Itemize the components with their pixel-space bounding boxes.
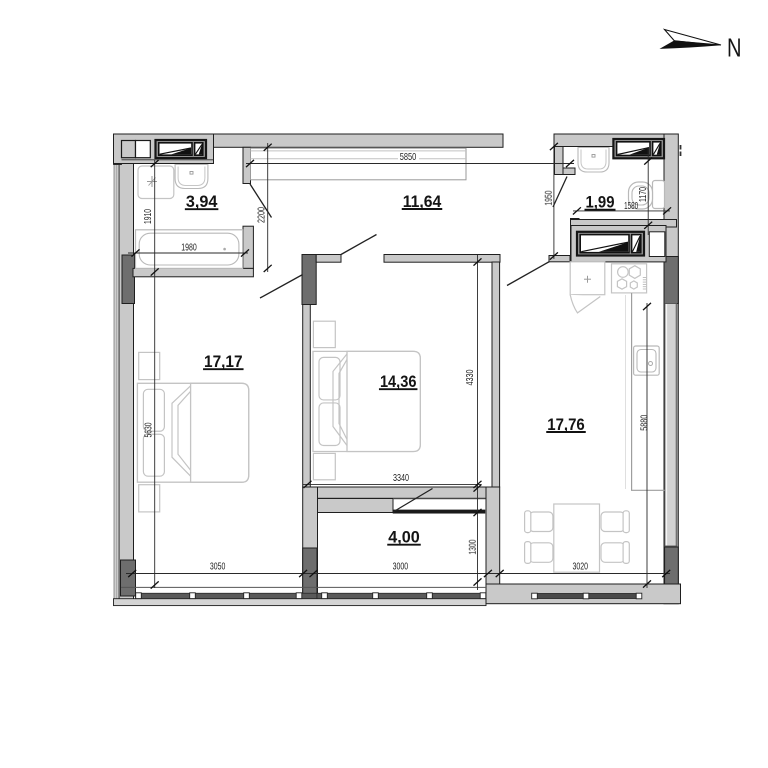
svg-text:1980: 1980 xyxy=(181,242,197,254)
svg-text:3000: 3000 xyxy=(393,560,409,572)
svg-text:2200: 2200 xyxy=(256,207,268,223)
svg-text:3,94: 3,94 xyxy=(186,192,218,211)
svg-text:1,99: 1,99 xyxy=(586,193,615,212)
svg-text:1910: 1910 xyxy=(142,209,154,224)
svg-text:5880: 5880 xyxy=(638,415,650,431)
svg-text:5850: 5850 xyxy=(400,151,417,163)
svg-text:17,17: 17,17 xyxy=(204,352,243,371)
svg-text:3340: 3340 xyxy=(393,472,409,484)
svg-text:17,76: 17,76 xyxy=(547,415,585,434)
svg-text:3020: 3020 xyxy=(573,560,589,572)
svg-text:5630: 5630 xyxy=(143,422,155,437)
svg-text:N: N xyxy=(727,33,742,63)
svg-text:1170: 1170 xyxy=(637,187,649,202)
svg-text:4,00: 4,00 xyxy=(388,528,420,547)
svg-text:1950: 1950 xyxy=(543,190,555,205)
svg-text:1300: 1300 xyxy=(467,539,479,554)
svg-text:3050: 3050 xyxy=(210,560,226,572)
svg-text:4330: 4330 xyxy=(464,369,476,385)
svg-text:11,64: 11,64 xyxy=(403,192,442,211)
svg-text:14,36: 14,36 xyxy=(380,372,417,391)
